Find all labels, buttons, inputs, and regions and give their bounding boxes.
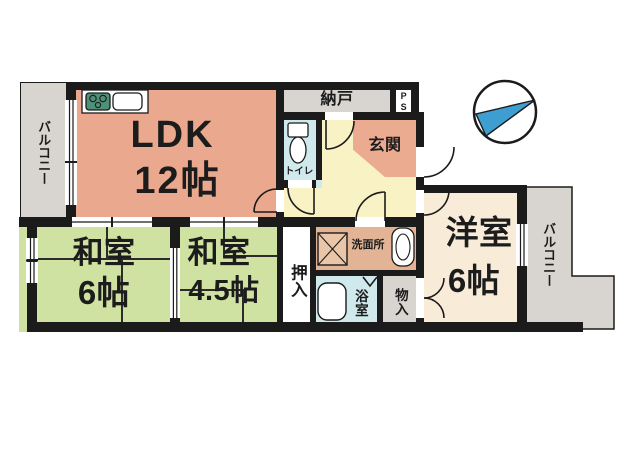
balcony-right-label: バルコニー [540,198,557,310]
washitsu6-label: 和室 [48,235,160,271]
wall-bottom [27,322,583,332]
oshiire-label: 押入 [287,252,307,310]
wall-senmenjo-bottom [310,270,424,276]
wall-middle-band [19,217,424,227]
washitsu45-label: 和室 [163,235,275,271]
room-youshitsu [416,185,527,332]
wall-ps-east [411,82,419,112]
compass-icon [474,81,536,143]
washitsu6-size-label: 6帖 [48,274,160,312]
youshitsu-size-label: 6帖 [419,262,529,300]
genkan-label: 玄関 [350,137,420,155]
toilet-label: トイレ [280,165,318,178]
washitsu45-size-label: 4.5帖 [161,274,287,310]
wall-top [66,82,419,90]
floor-plan: LDK 12帖 和室 6帖 和室 4.5帖 洋室 6帖 玄関 納戸 PS トイレ… [0,0,640,456]
yokushitsu-label: 浴室 [351,284,369,322]
ps-label: PS [395,89,411,115]
wall-youshitsu-east [517,185,527,322]
nando-label: 納戸 [300,91,374,109]
wall-ldk-west [66,90,76,218]
senmenjo-label: 洗面所 [345,239,391,252]
wall-ldk-east [276,82,284,218]
wall-youshitsu-top [424,185,527,193]
wall-west-lower [27,217,37,332]
balcony-left-label: バルコニー [35,104,52,201]
ldk-label: LDK [95,113,250,157]
wall-toilet-bottom [276,180,316,188]
wall-yokushitsu-east [377,276,383,322]
youshitsu-label: 洋室 [424,214,534,252]
mononoire-label: 物入 [391,283,409,321]
ldk-size-label: 12帖 [95,159,260,203]
